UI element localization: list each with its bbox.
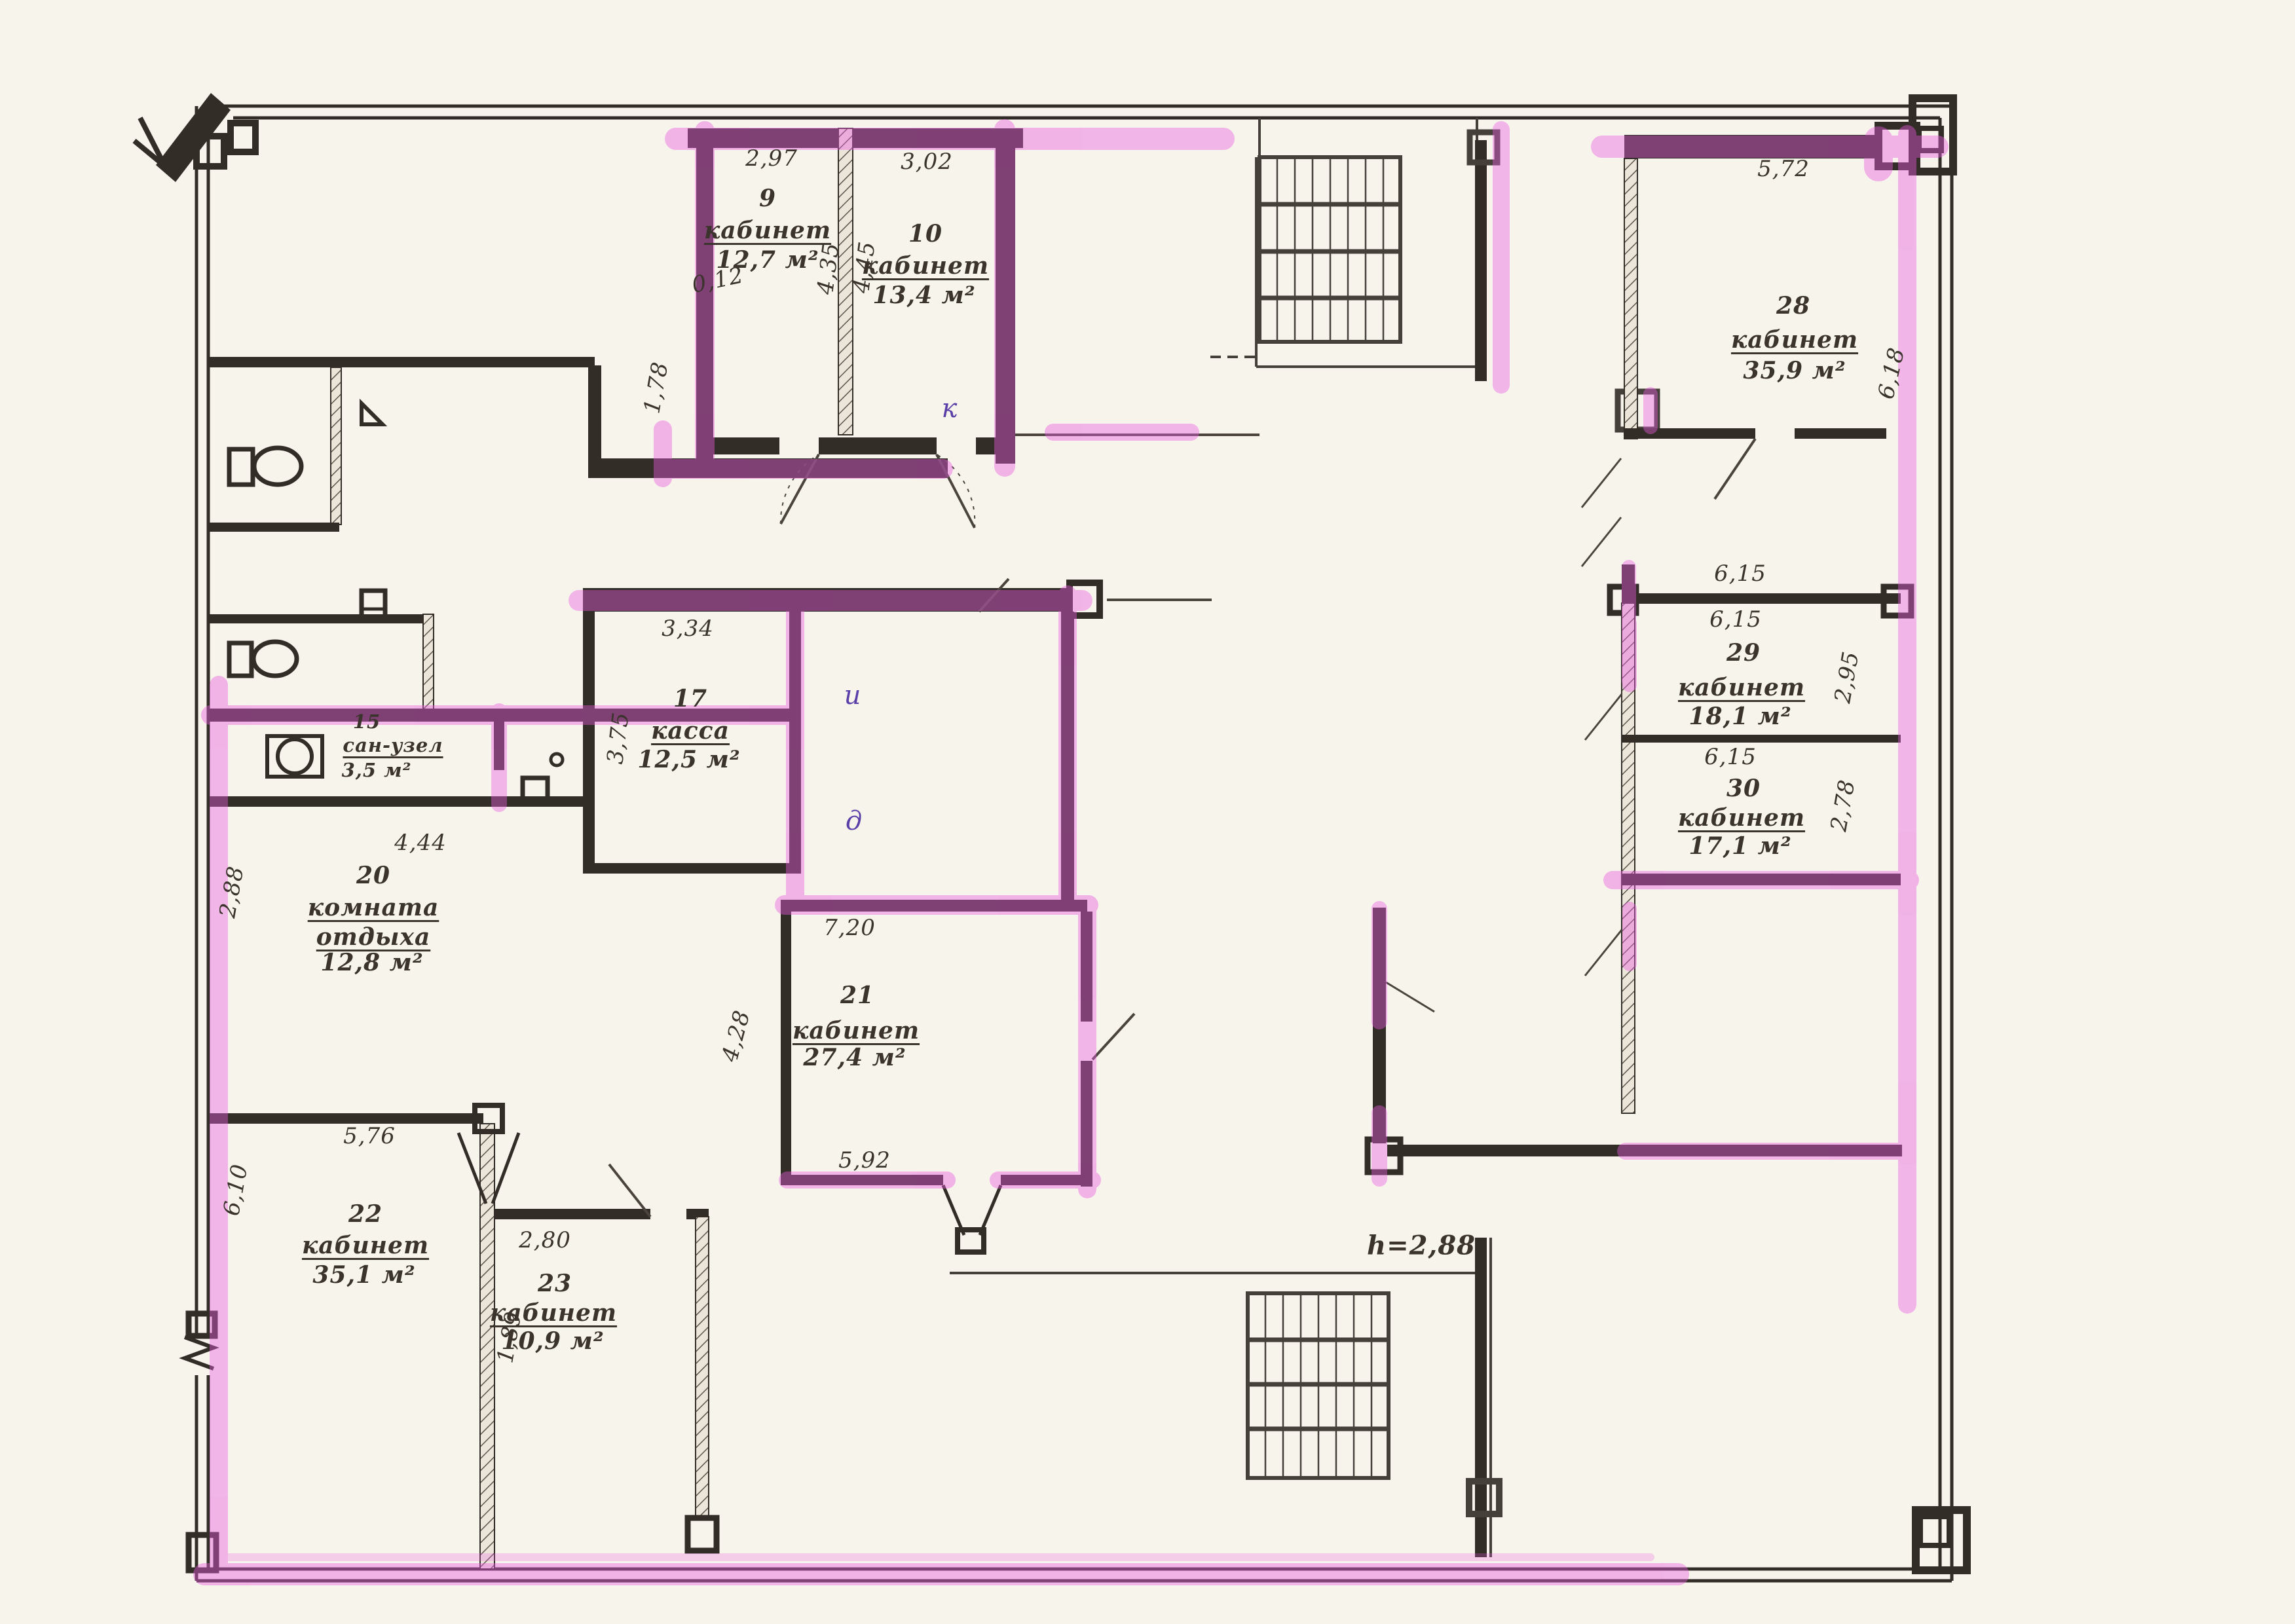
room-17-number: 17 (673, 685, 707, 712)
room-15-area: 3,5 м² (342, 759, 412, 781)
dim-room22-width: 5,76 (343, 1123, 396, 1149)
room-30-area: 17,1 м² (1689, 832, 1791, 860)
dim-room20-width: 4,44 (394, 830, 447, 856)
pen-mark-2: д (846, 806, 863, 836)
dim-room28-width: 5,72 (1757, 156, 1810, 182)
room-29-area: 18,1 м² (1689, 703, 1791, 730)
room-22-name: кабинет (302, 1232, 429, 1259)
room-15-name: сан-узел (343, 734, 443, 756)
room-23-number: 23 (538, 1270, 572, 1297)
room-20-name-line1: комната (308, 894, 439, 921)
dim-room29-width-above: 6,15 (1714, 561, 1766, 587)
room-17-area: 12,5 м² (637, 746, 740, 773)
room-21-name: кабинет (793, 1017, 920, 1044)
dim-room17-width: 3,34 (662, 616, 714, 642)
room-22-number: 22 (348, 1200, 382, 1228)
room-20-area: 12,8 м² (320, 949, 423, 976)
dim-room10-width: 3,02 (901, 149, 953, 175)
room-28-name: кабинет (1731, 326, 1858, 354)
room-28-area: 35,9 м² (1743, 357, 1846, 384)
dim-room9-width: 2,97 (745, 145, 798, 172)
pink-highlighter-marks (204, 130, 1937, 1574)
room-10-area: 13,4 м² (872, 282, 975, 309)
dim-room29-width-below: 6,15 (1709, 606, 1762, 633)
dim-room23-width: 2,80 (519, 1227, 571, 1253)
room-21-number: 21 (840, 982, 874, 1009)
room-30-number: 30 (1726, 775, 1761, 802)
room-30-name: кабинет (1678, 804, 1805, 832)
room-9-name: кабинет (704, 217, 831, 244)
room-22-area: 35,1 м² (312, 1261, 415, 1289)
scanned-floorplan-page: 2,97 9 кабинет 12,7 м² 0,12 4,35 4,45 3,… (0, 0, 2295, 1624)
room-10-name: кабинет (862, 252, 989, 280)
dim-5-92: 5,92 (838, 1147, 891, 1173)
room-28-number: 28 (1776, 292, 1810, 320)
rooms-22-23-walls (208, 1105, 717, 1569)
dim-room21-width: 7,20 (823, 915, 876, 941)
room-29-name: кабинет (1678, 674, 1805, 701)
dim-room30-width: 6,15 (1704, 744, 1757, 770)
room-20-name-line2: отдыха (316, 923, 431, 951)
room-17-name: касса (651, 717, 730, 745)
room-15-number: 15 (353, 710, 381, 733)
room-20-number: 20 (356, 862, 390, 889)
staircase-top (1210, 118, 1657, 430)
staircase-bottom (950, 1238, 1499, 1557)
room-9-number: 9 (759, 185, 776, 212)
room-29-number: 29 (1726, 639, 1761, 667)
wc-block (208, 357, 595, 710)
ceiling-height-note: h=2,88 (1367, 1230, 1476, 1261)
floorplan-linework (0, 0, 2295, 1624)
pen-mark-1: и (844, 680, 862, 710)
pen-mark-3: к (942, 394, 958, 424)
room-10-number: 10 (908, 220, 942, 248)
room-21-area: 27,4 м² (803, 1044, 906, 1071)
